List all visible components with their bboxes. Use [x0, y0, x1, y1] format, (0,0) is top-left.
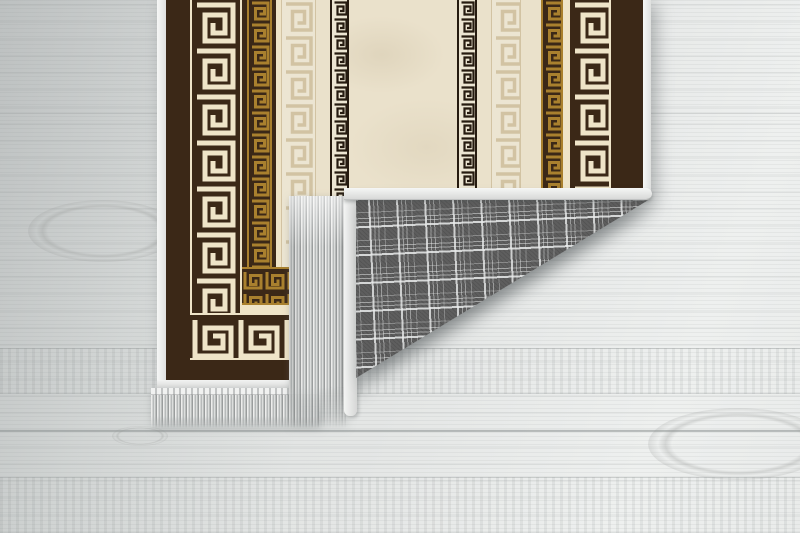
rug-left-binding [157, 0, 166, 388]
stripe-brown-left [166, 0, 190, 388]
fold-edge-binding [344, 194, 357, 416]
fold-fringe-tassels [289, 196, 346, 428]
wood-knot [28, 200, 178, 262]
fold-crease-binding [344, 188, 652, 200]
product-photo [0, 0, 800, 533]
fringe-highlight [289, 196, 346, 428]
wood-rough-band [0, 477, 800, 533]
wood-knot [112, 426, 168, 446]
wood-rough-band [0, 348, 800, 394]
